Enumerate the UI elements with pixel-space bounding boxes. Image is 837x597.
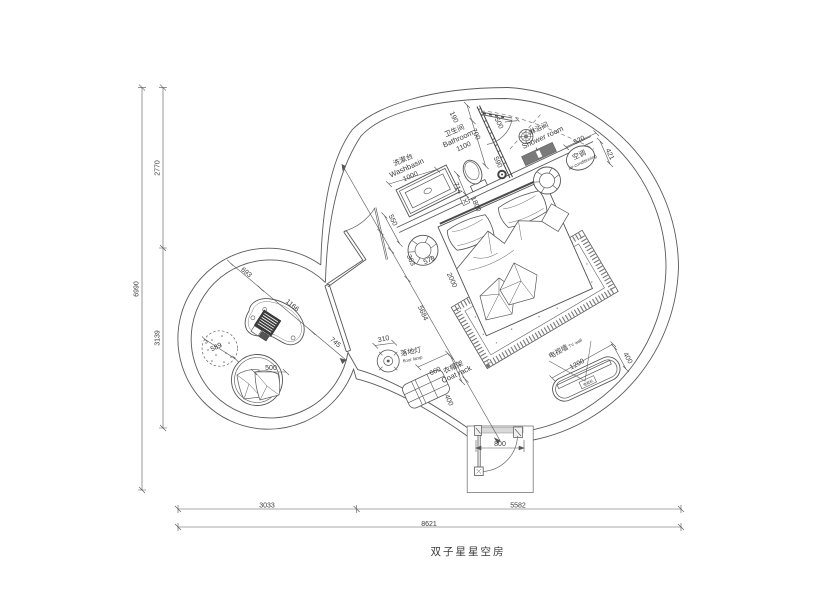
svg-text:6990: 6990 <box>134 281 141 297</box>
svg-text:8621: 8621 <box>421 521 437 528</box>
svg-text:5582: 5582 <box>510 503 526 510</box>
svg-text:3139: 3139 <box>155 330 162 346</box>
svg-text:800: 800 <box>494 441 506 448</box>
svg-text:3033: 3033 <box>259 503 275 510</box>
svg-text:双子星星空房: 双子星星空房 <box>431 545 506 558</box>
svg-text:2770: 2770 <box>155 160 162 176</box>
svg-text:500: 500 <box>265 365 277 372</box>
